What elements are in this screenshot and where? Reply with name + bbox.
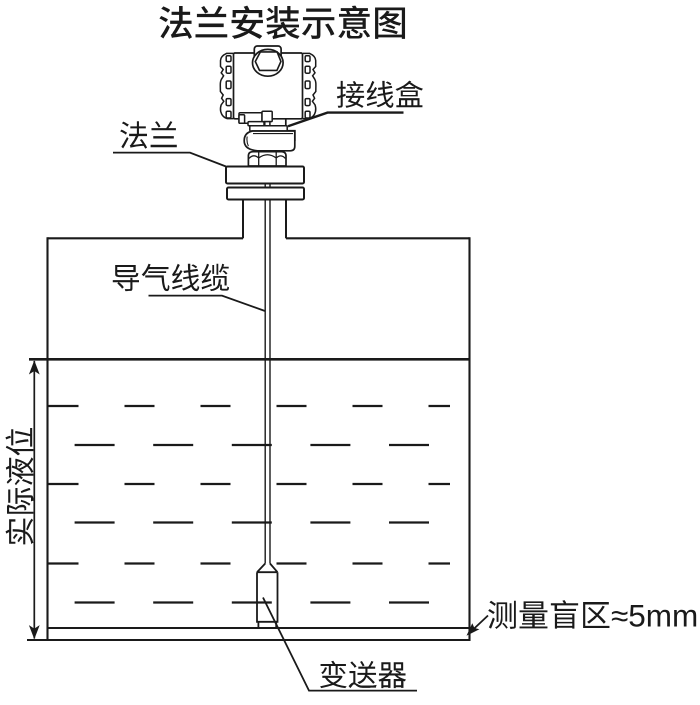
svg-text:≈5mm: ≈5mm — [611, 598, 698, 634]
